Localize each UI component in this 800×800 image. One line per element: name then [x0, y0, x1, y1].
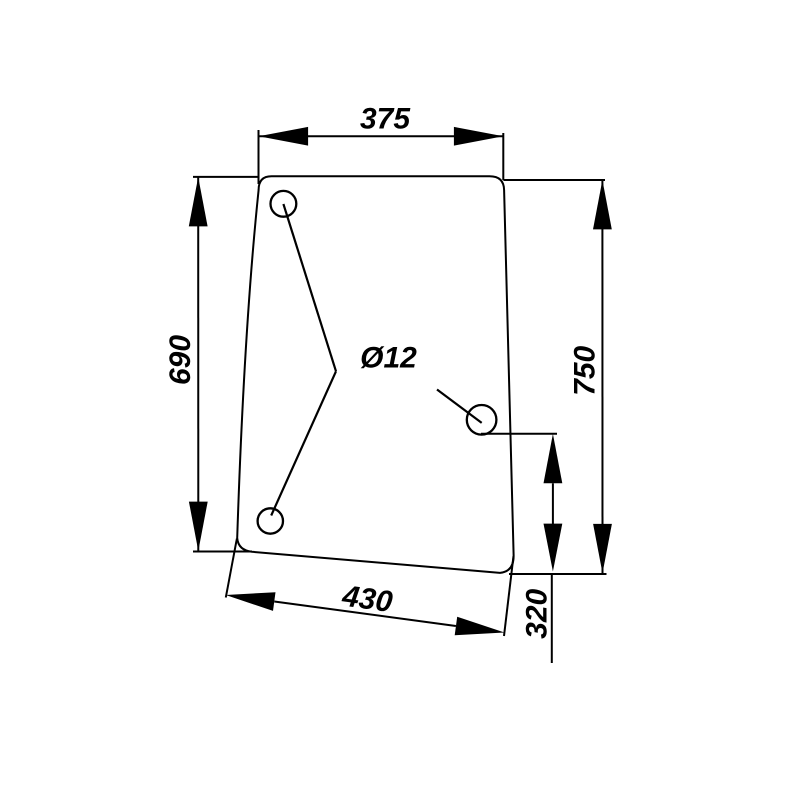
svg-text:Ø12: Ø12: [360, 342, 417, 375]
svg-text:750: 750: [568, 345, 601, 395]
svg-text:430: 430: [339, 579, 394, 619]
svg-text:320: 320: [520, 588, 553, 638]
svg-text:690: 690: [164, 335, 197, 385]
svg-text:375: 375: [360, 103, 411, 136]
